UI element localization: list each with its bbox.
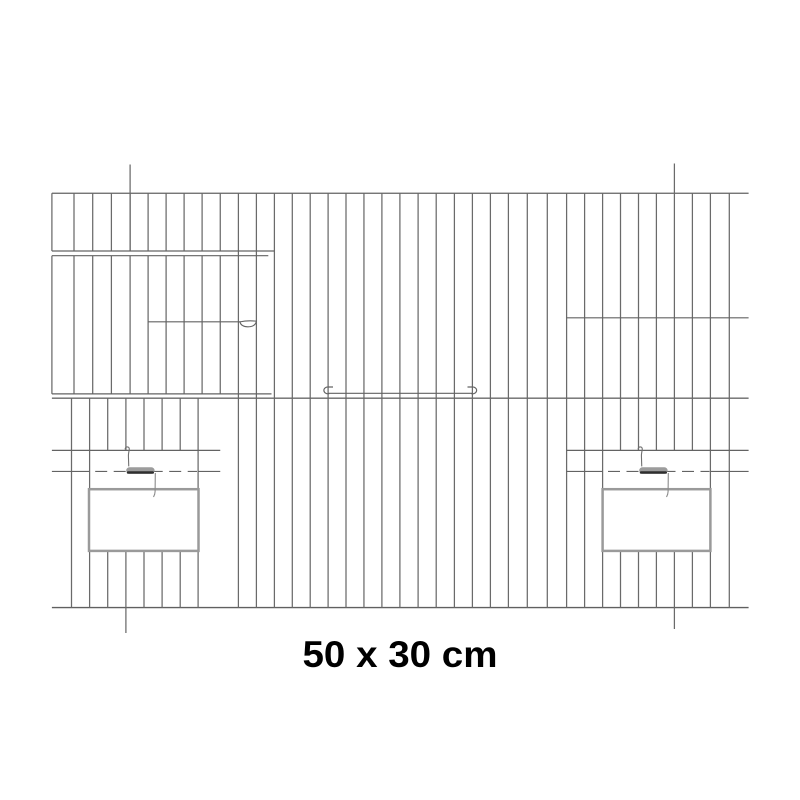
svg-text:50 x 30 cm: 50 x 30 cm [303,634,498,675]
